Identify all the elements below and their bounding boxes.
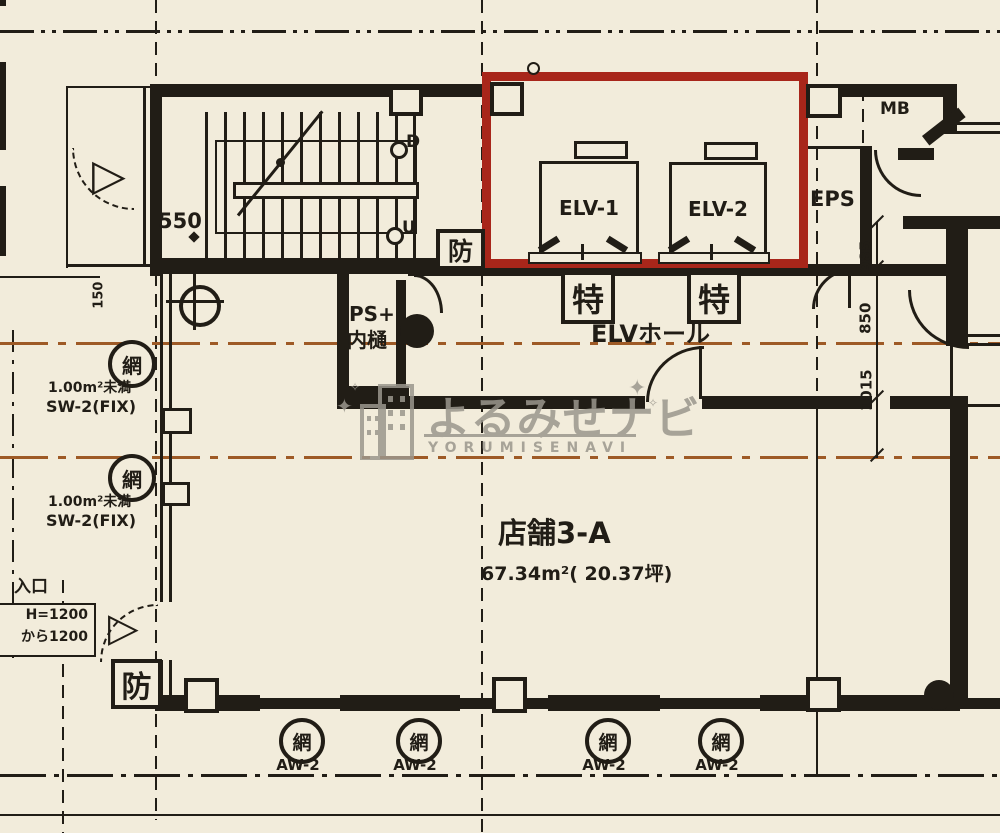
window-sw2 [162,482,190,506]
special-door-label: 特 [698,275,730,321]
room-label-elv-hall: ELVホール [591,321,710,347]
wall-hall-east-thin [950,346,953,398]
dim-985: 985 [857,241,874,272]
wall-eps-top [808,146,862,149]
window-sw2 [162,408,192,434]
column-square [806,84,842,118]
column-square [490,82,524,116]
wall-shop-west [169,660,172,710]
special-door-label: 特 [572,275,604,321]
dim-850: 850 [857,303,874,334]
wired-glass-char: 網 [122,350,142,379]
boundary-line-bottom [0,774,1000,777]
wired-glass-char: 網 [292,728,311,755]
column-square [806,677,841,712]
watermark-divider [424,434,636,437]
stair-down-label: D [406,133,420,152]
fire-shutter-box: 防 [111,659,162,709]
window-aw2-label: AW-2 [390,757,440,774]
wall-right-thin [968,404,1000,407]
wired-glass-char: 網 [409,728,428,755]
short-line [0,276,100,278]
fire-shutter-label: 防 [122,662,152,706]
wall-opening-line [957,131,1000,134]
dim-150: 150 [92,282,106,309]
wall-vestibule-bottom [66,264,152,267]
elevator2-door-tick [710,244,713,260]
window-note: SW-2(FIX) [46,512,136,530]
wall-shop-west [169,266,172,602]
sparkle-icon: ✧ [350,380,360,394]
door-arc-ps [414,274,443,313]
stair-tread [224,112,227,258]
room-label-shop: 店舗3-A [498,518,611,550]
wall-junction-dot [924,680,954,710]
door-leaf-eps [848,268,851,308]
column-square [184,678,219,713]
stair-break-dot [276,158,285,167]
wall-right-thin [968,334,1000,337]
elevator1-sill [528,252,642,264]
room-label-ps2: 内樋 [347,329,387,351]
dim-1015: 1015 [859,369,876,411]
benchmark-line [193,274,196,330]
wall-top-left [150,84,482,97]
window-note: 1.00m²未満 [48,381,131,396]
exit-triangle-icon: ▷ [108,606,139,650]
room-label-eps: EPS [810,188,855,211]
wall-stair-left [150,84,162,276]
fire-shutter-label: 防 [448,232,473,268]
room-label-mb: MB [880,100,910,119]
grid-line-bottom-solid [0,814,1000,816]
fire-shutter-box: 防 [436,229,485,270]
wall-shop-bottom-pier [340,695,460,711]
window-aw2-label: AW-2 [579,757,629,774]
wall-hall-bottom-c [890,396,954,409]
special-door-box: 特 [561,271,615,324]
sparkle-icon: ✦ [336,394,353,418]
watermark-subtitle: YORUMISENAVI [428,440,632,456]
column-square [389,86,423,116]
wall-vestibule-inner [143,86,146,266]
special-door-box: 特 [687,271,741,324]
exit-triangle-icon: ▷ [92,152,126,200]
entrance-note-line2: から1200 [21,630,88,645]
elevator1-counterweight [574,141,628,159]
wall-right-thin [968,343,1000,346]
wall-opening-line [957,122,1000,125]
elevator1-door-tick [581,244,584,260]
door-leaf-right-room [963,290,966,346]
boundary-line-top [0,30,1000,33]
entrance-note-title: 入口 [14,578,48,597]
building-icon [358,380,420,460]
wired-glass-char: 網 [598,728,617,755]
edge-wall-stub-b [0,186,6,256]
wall-vestibule-top [66,86,152,88]
door-arc-right-room [908,290,969,349]
dim-550: 550 [158,210,202,233]
edge-wall-stub-a [0,62,6,150]
entrance-note-line1: H=1200 [26,608,88,623]
sparkle-icon: ✧ [648,396,658,410]
room-area-shop: 67.34m²( 20.37坪) [481,564,672,585]
watermark: ✦ ✧ よるみせナビ ✦ ✧ YORUMISENAVI [330,372,675,468]
dim-line-right [876,222,878,458]
wall-shop-bottom-pier [548,695,660,711]
grid-line-vertical-right-lower [816,410,818,775]
stair-tread [205,112,208,258]
center-line-upper [0,342,1000,345]
wall-shop-west [160,266,163,602]
wall-hall-bottom-b [702,396,872,409]
sparkle-icon: ✦ [628,376,646,401]
entrance-note-line [0,655,96,657]
window-note: SW-2(FIX) [46,398,136,416]
wall-shop-right [950,396,968,708]
benchmark-icon [179,285,221,327]
window-aw2-label: AW-2 [692,757,742,774]
elevator2-counterweight [704,142,758,160]
window-aw2-label: AW-2 [273,757,323,774]
door-arc-mb [874,150,921,197]
wall-mb-left-dashed [862,88,864,148]
entrance-note-box: H=1200 から1200 [0,603,96,657]
window-note: 1.00m²未満 [48,495,131,510]
stair-up-label: U [402,219,416,238]
elevator2-car: ELV-2 [0,0,6,6]
drain-circle [400,314,434,348]
wall-vestibule-left [66,86,68,268]
elevator2-sill [658,252,770,264]
watermark-title: よるみせナビ [426,382,701,447]
wired-glass-char: 網 [122,464,142,493]
column-square [492,677,527,713]
floor-plan: D U ELV-1 ELV-2 ▷ ▷ 防 防 特 特 網 網 [0,0,1000,833]
small-dot [527,62,540,75]
wired-glass-char: 網 [711,728,730,755]
room-label-ps1: PS+ [349,303,395,325]
